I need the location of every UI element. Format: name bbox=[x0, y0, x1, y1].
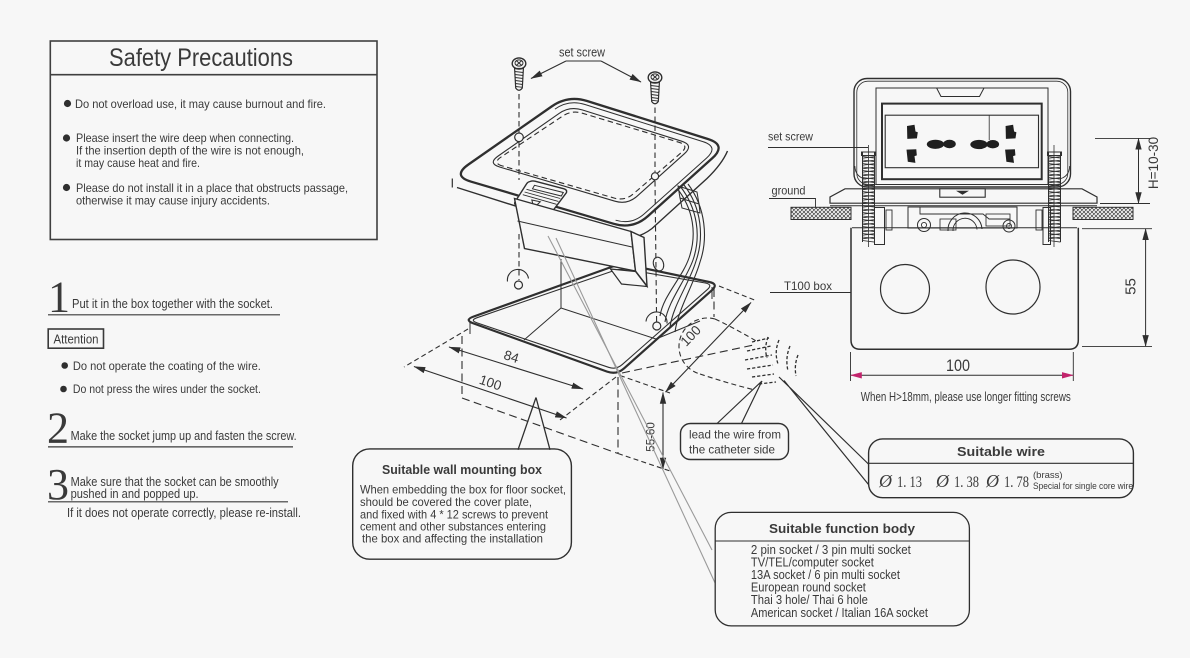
svg-text:American socket / Italian 16A: American socket / Italian 16A socket bbox=[751, 606, 928, 620]
svg-text:Do not overload use, it may c: Do not overload use, it may cause burnou… bbox=[75, 97, 326, 111]
svg-text:set screw: set screw bbox=[768, 130, 813, 144]
svg-text:otherwise it may cause injury: otherwise it may cause injury accidents. bbox=[76, 194, 270, 208]
svg-text:Special for single core wire: Special for single core wire bbox=[1033, 481, 1133, 492]
svg-text:Ø: Ø bbox=[878, 471, 893, 491]
svg-text:the catheter side: the catheter side bbox=[689, 443, 775, 457]
svg-text:T100 box: T100 box bbox=[784, 279, 832, 293]
svg-text:1. 13: 1. 13 bbox=[897, 474, 922, 491]
svg-text:55: 55 bbox=[1123, 278, 1140, 295]
svg-text:1: 1 bbox=[48, 273, 70, 322]
svg-text:the box and affecting the inst: the box and affecting the installation bbox=[362, 531, 543, 545]
svg-text:When H>18mm, please use longer: When H>18mm, please use longer fitting s… bbox=[861, 390, 1071, 404]
svg-text:Make the socket jump up and fa: Make the socket jump up and fasten the s… bbox=[71, 429, 297, 443]
svg-text:100: 100 bbox=[946, 357, 970, 375]
svg-text:1. 78: 1. 78 bbox=[1004, 474, 1029, 491]
svg-text:Ø: Ø bbox=[935, 471, 950, 491]
svg-text:Put it in the box together wit: Put it in the box together with the sock… bbox=[72, 297, 273, 311]
svg-text:H=10-30: H=10-30 bbox=[1146, 137, 1161, 189]
svg-text:1. 38: 1. 38 bbox=[954, 474, 979, 491]
svg-text:ground: ground bbox=[772, 184, 806, 198]
svg-text:Attention: Attention bbox=[54, 333, 99, 347]
svg-text:set screw: set screw bbox=[559, 46, 606, 60]
svg-text:Ø: Ø bbox=[985, 471, 1000, 491]
svg-text:Do not press the wires under t: Do not press the wires under the socket. bbox=[73, 382, 261, 396]
svg-text:Suitable wire: Suitable wire bbox=[957, 444, 1045, 459]
svg-text:Do not operate the coating of: Do not operate the coating of the wire. bbox=[73, 359, 261, 373]
svg-text:Suitable wall mounting box: Suitable wall mounting box bbox=[382, 462, 543, 477]
svg-text:2: 2 bbox=[47, 404, 69, 453]
svg-text:it may cause heat and fire.: it may cause heat and fire. bbox=[76, 156, 200, 170]
svg-text:If it does not operate correct: If it does not operate correctly, please… bbox=[67, 506, 301, 520]
svg-text:pushed in and popped up.: pushed in and popped up. bbox=[71, 487, 199, 501]
svg-text:Safety Precautions: Safety Precautions bbox=[109, 44, 293, 72]
svg-text:lead the wire from: lead the wire from bbox=[689, 428, 781, 442]
svg-text:Suitable function body: Suitable function body bbox=[769, 521, 916, 536]
svg-text:(brass): (brass) bbox=[1033, 470, 1063, 481]
